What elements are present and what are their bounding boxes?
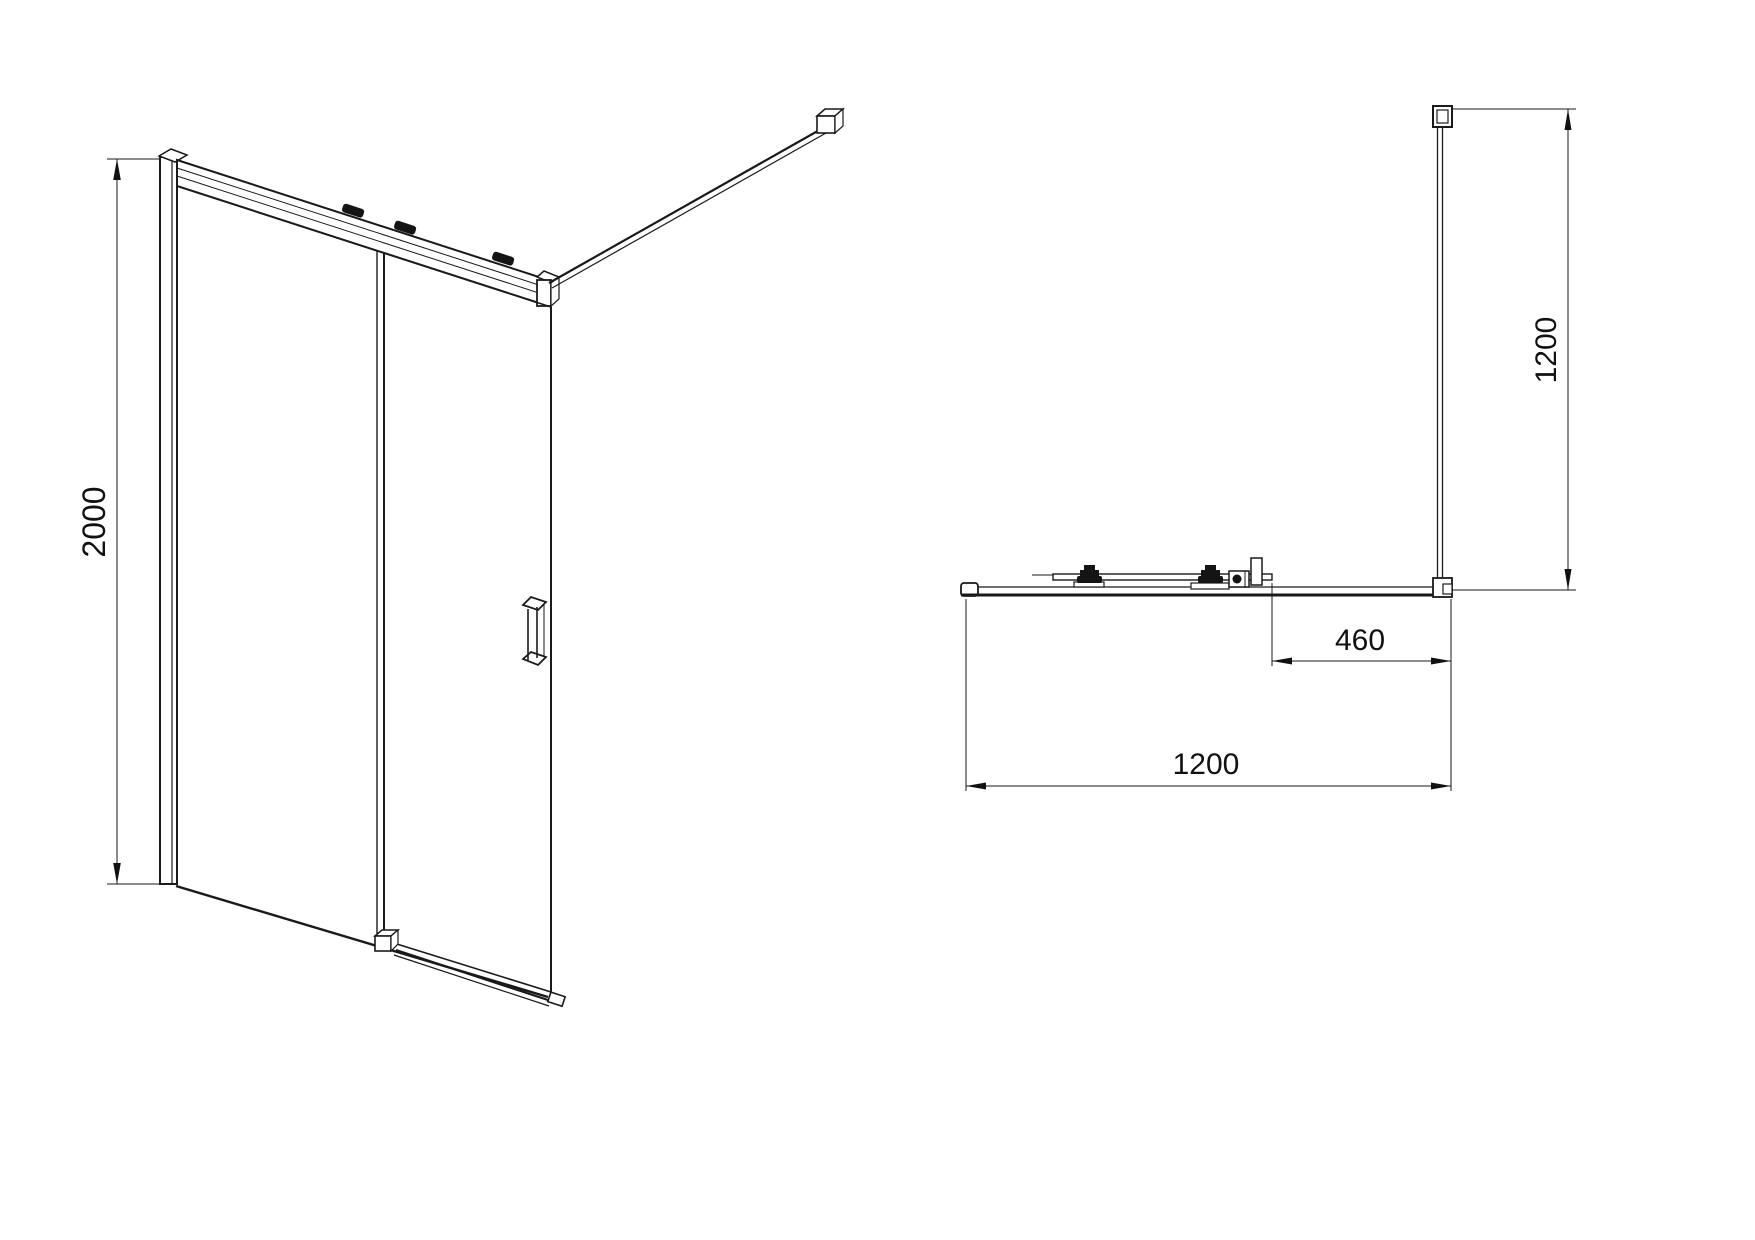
clamp-plan (1229, 571, 1249, 587)
clamp-bolt-icon (1233, 575, 1242, 584)
wall-profile (159, 149, 187, 884)
top-rail-track-line (177, 176, 542, 294)
handle-top-cap (523, 597, 546, 610)
sliding-door (377, 251, 551, 992)
bottom-rail-top-edge (396, 950, 551, 1001)
roller-knob (1205, 565, 1216, 570)
corner-bracket-inner (1443, 584, 1452, 594)
support-bar-bracket (817, 116, 835, 133)
rail-end-cap (537, 280, 551, 306)
handle-bottom-cap (523, 652, 546, 665)
dim-width-label: 1200 (1173, 748, 1240, 781)
wall-bracket (1433, 106, 1452, 127)
roller-flange (1077, 576, 1102, 583)
wall-bracket-inner (1437, 110, 1448, 123)
arrowhead-right-icon (1431, 783, 1451, 790)
support-bar-plan (1438, 127, 1443, 580)
bottom-rail-bottom-edge (394, 955, 549, 1006)
arrowhead-left-icon (966, 783, 986, 790)
stopper-plan (1251, 558, 1262, 585)
panel-bottom-edge (176, 886, 548, 997)
dim-depth-1200: 1200 (1452, 109, 1576, 590)
arrowhead-left-icon (1272, 658, 1292, 665)
bottom-rail-end-cap (548, 992, 565, 1006)
roller-flange (1198, 576, 1223, 583)
dim-bar-offset-label: 460 (1335, 624, 1385, 657)
arrowhead-right-icon (1431, 658, 1451, 665)
door-handle (523, 597, 546, 665)
door-bottom-edge (384, 940, 551, 992)
bottom-rail (394, 950, 565, 1006)
support-bar (549, 109, 843, 288)
top-rail-track-line (177, 168, 542, 286)
arrowhead-up-icon (1565, 109, 1572, 130)
dim-height-2000: 2000 (76, 159, 168, 884)
drawing-sheet: 2000 (0, 0, 1755, 1240)
arrowhead-down-icon (1565, 569, 1572, 590)
stopper-body (1251, 558, 1262, 585)
top-rail (177, 160, 559, 306)
corner-bracket-plan (1433, 578, 1452, 597)
arrowhead-up-icon (113, 159, 121, 180)
front-view: 2000 (76, 109, 843, 1006)
wall-profile-body (160, 157, 177, 884)
bottom-guide (375, 930, 398, 951)
roller-plate (1191, 583, 1229, 589)
technical-drawing-canvas: 2000 (0, 0, 1755, 1240)
arrowhead-down-icon (113, 863, 121, 884)
top-rail-body (177, 160, 542, 304)
dim-height-label: 2000 (76, 486, 112, 557)
roller-neck (1201, 570, 1220, 576)
roller-neck (1080, 570, 1099, 576)
support-bar-top-edge (549, 128, 823, 283)
guide-body (375, 936, 391, 951)
roller-knob (1084, 565, 1095, 570)
fixed-panel (176, 886, 548, 997)
dim-depth-label: 1200 (1530, 317, 1563, 384)
plan-view: 460 1200 1200 (961, 106, 1576, 791)
support-bar-bottom-edge (552, 133, 826, 288)
